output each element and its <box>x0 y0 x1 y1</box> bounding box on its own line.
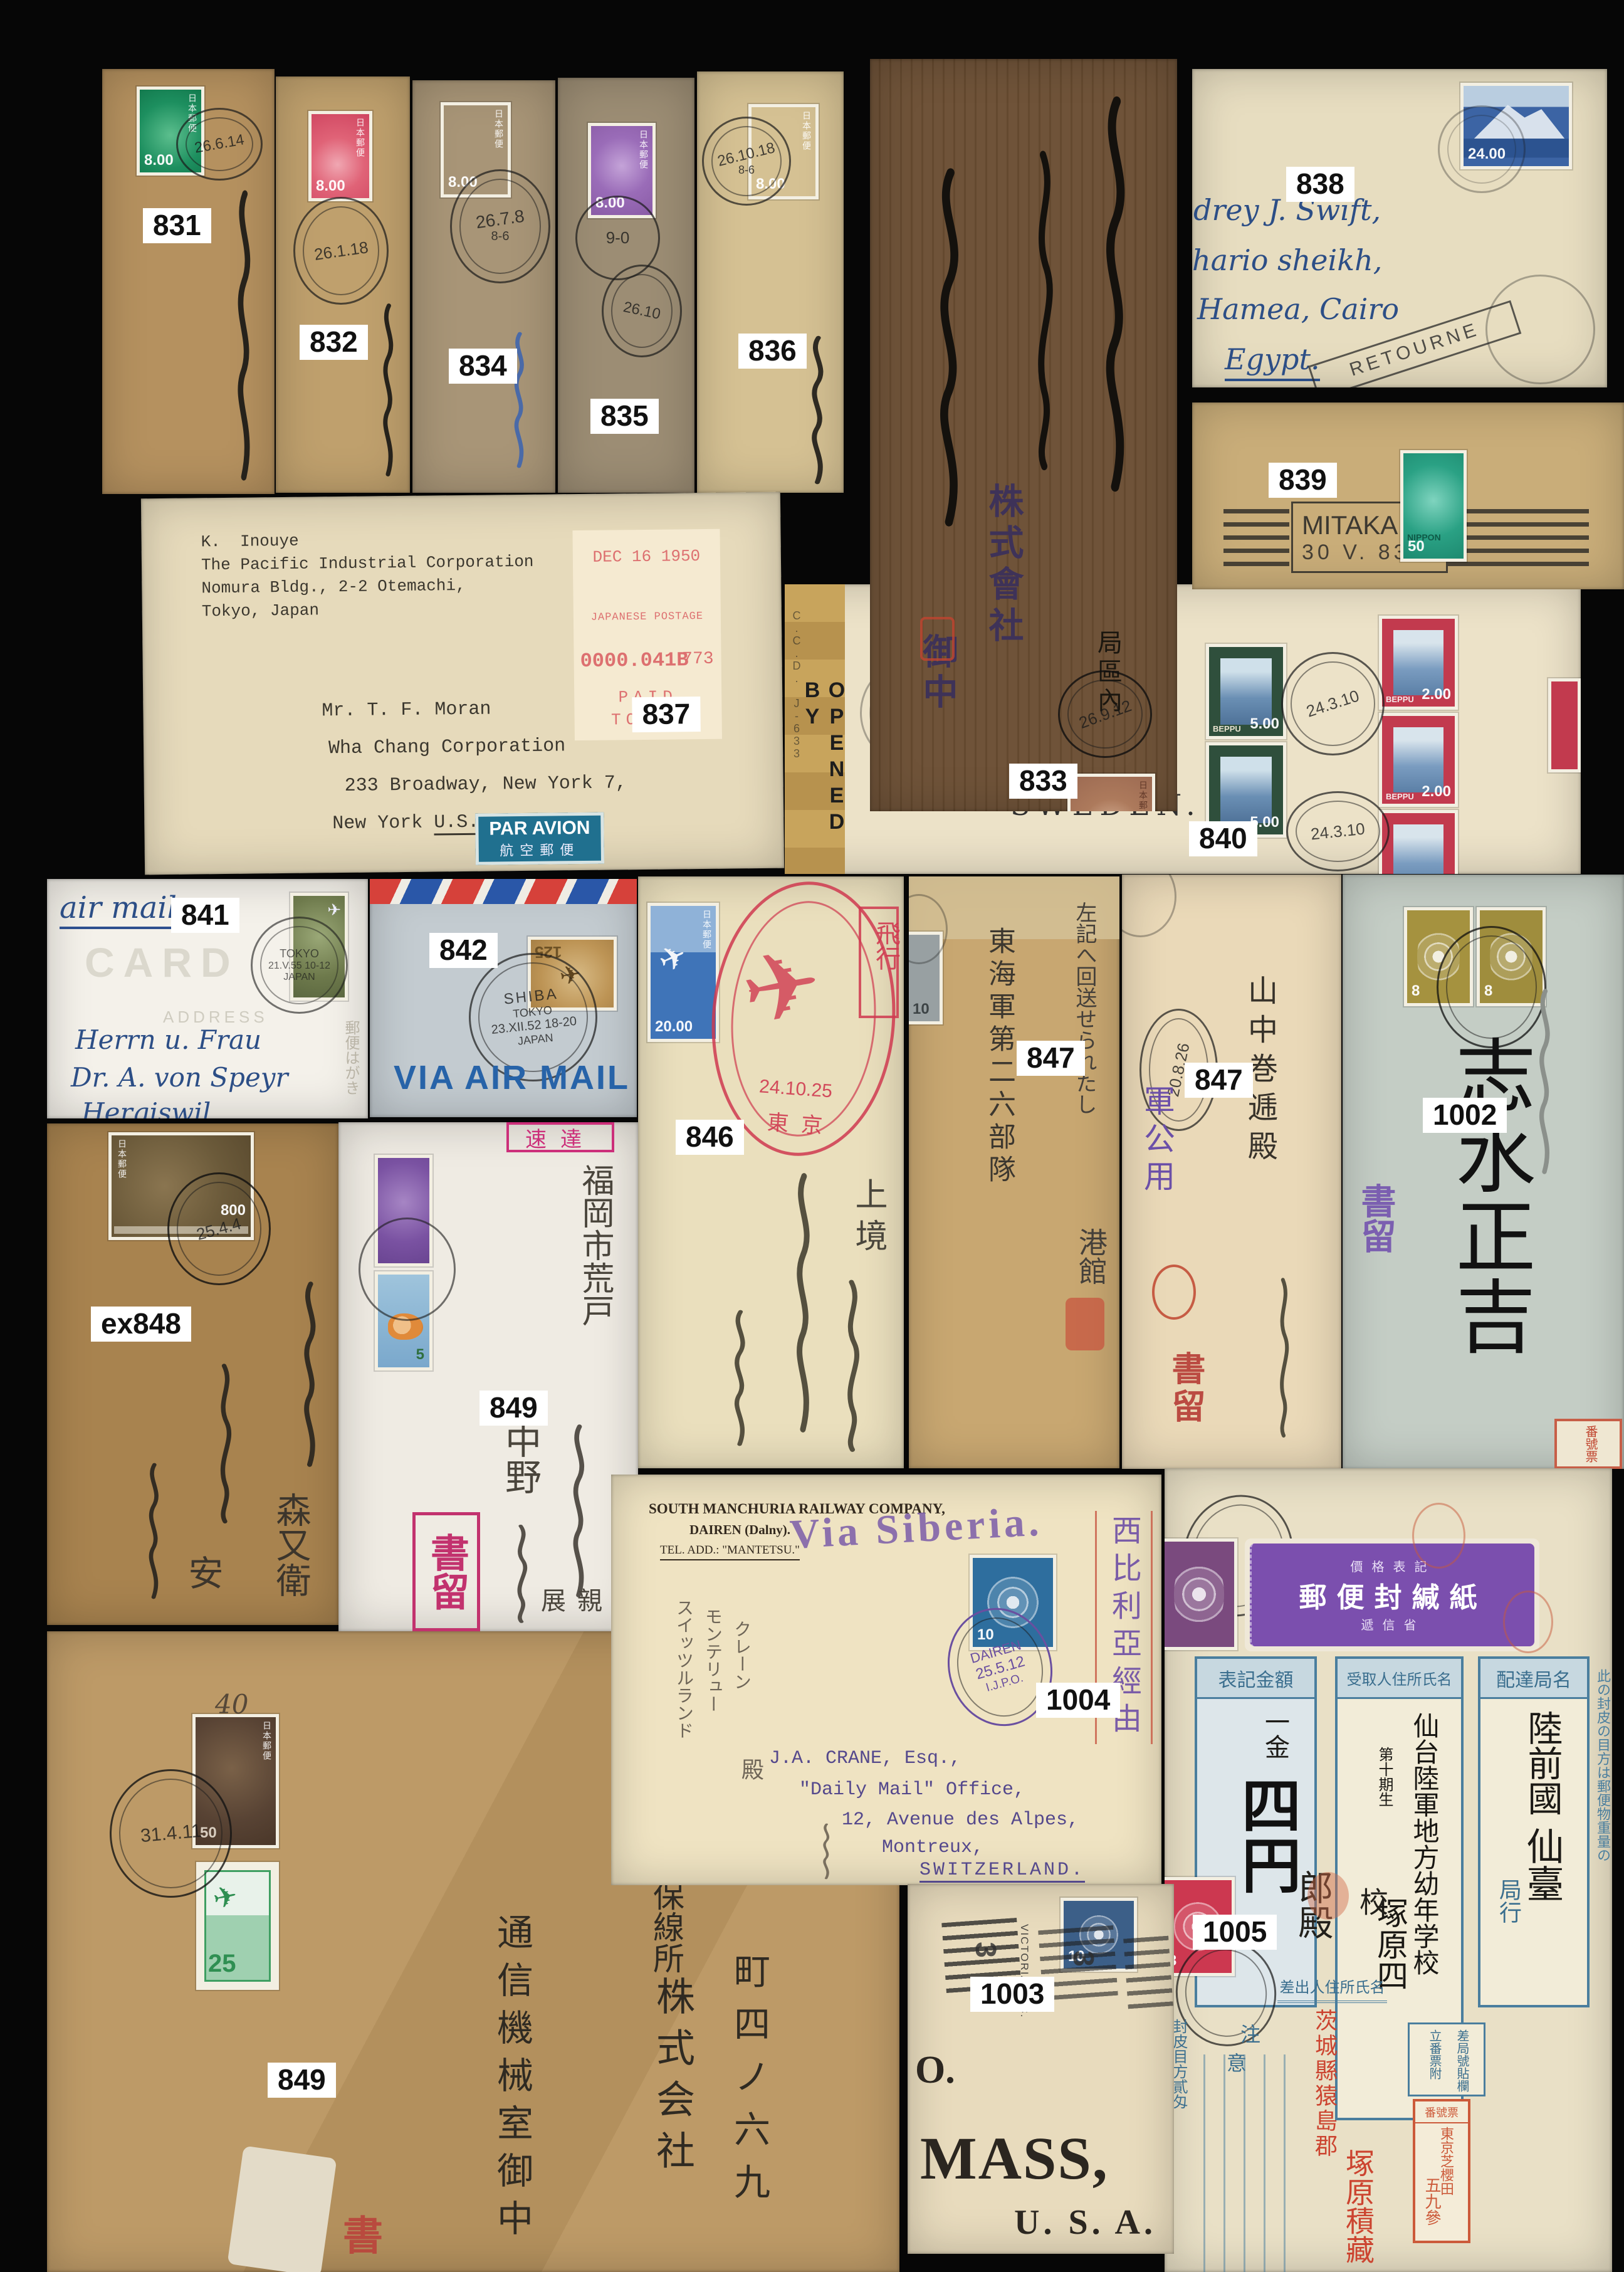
registered-text: 書留 <box>418 1533 474 1611</box>
postmark-town: SHIBA <box>503 986 558 1009</box>
chrysanthemum-motif <box>1174 1552 1224 1637</box>
postmark-city: TOKYO <box>512 1004 553 1021</box>
cover-838: 24.00 drey J. Swift, hario sheikh, Hamea… <box>1192 69 1607 387</box>
postmark-index: 8-6 <box>491 229 510 244</box>
stamp-value: 5.00 <box>1250 715 1279 733</box>
postmark: 31.4.11 <box>110 1769 232 1898</box>
cover-846: 日本郵便 ✈ 20.00 ✈ 24.10.25 東京 飛行 上境 846 <box>638 876 904 1468</box>
stamp-value: 2.00 <box>1422 686 1451 703</box>
retourne-text: RETOURNE <box>1347 318 1482 381</box>
calligraphy-stroke <box>509 1523 534 1624</box>
pencil-katakana: スイッツルランド <box>671 1599 696 1739</box>
torn-patch <box>228 2145 337 2272</box>
header-text: 受取人住所氏名 <box>1347 1667 1452 1689</box>
calligraphy-stroke <box>564 1423 593 1599</box>
machine-cancel-bars <box>1448 509 1589 569</box>
postmark: 24.3.10 <box>1281 652 1385 755</box>
header-text: 表記金額 <box>1218 1665 1294 1692</box>
stamp-value: 2.00 <box>1422 783 1451 801</box>
cover-842: 125 ✈ SHIBA TOKYO 23.XII.52 18-20 JAPAN … <box>370 879 637 1117</box>
delivery-province: 陸前國 <box>1517 1710 1568 1816</box>
address-column: 株式会社 <box>644 1976 700 2182</box>
postage-stamp-purple <box>1165 1538 1237 1650</box>
addressee-line: 233 Broadway, New York 7, <box>345 772 627 797</box>
lot-number: 834 <box>449 349 517 384</box>
postmark <box>1437 926 1546 1048</box>
postmark: 26.10.18 8-6 <box>702 117 791 206</box>
lot-number: 831 <box>143 208 211 243</box>
cover-834: 日本郵便 8.00 26.7.8 8-6 834 <box>412 80 555 493</box>
meter-serial: 773 <box>682 650 714 670</box>
par-avion-jp: 航空郵便 <box>500 839 580 860</box>
cover-1004: SOUTH MANCHURIA RAILWAY COMPANY, DAIREN … <box>611 1475 1161 1885</box>
calligraphy-stroke <box>726 1309 753 1447</box>
label-title: 番號票 <box>1582 1425 1600 1463</box>
red-box-text: 飛行 <box>867 920 904 970</box>
catalog-page: { "colors": { "background": "#060606", "… <box>0 0 1624 2272</box>
postage-stamp-green: BEPPU 5.00 <box>1206 644 1286 739</box>
postmark-date: 26.10.18 <box>716 139 777 171</box>
cover-831: 日本郵便 8.00 26.6.14 831 <box>102 69 275 494</box>
continuation-calligraphy: 校 <box>1351 1887 1393 1916</box>
printed-address: MASS, <box>920 2123 1109 2193</box>
stamp-inscription: 日本郵便 <box>354 118 366 158</box>
addressee-country: SWITZERLAND. <box>919 1859 1085 1883</box>
postage-stamp: 日本郵便 ✈ 20.00 <box>647 903 719 1042</box>
lot-number: 1002 <box>1423 1098 1507 1133</box>
postmark: 24.3.10 <box>1286 791 1390 871</box>
stamp-vignette <box>1393 824 1443 874</box>
calligraphy-stroke <box>1025 147 1063 473</box>
addressee-class: 第十期生 <box>1374 1747 1396 1807</box>
express-handstamp: 速達 <box>506 1122 614 1152</box>
postmark-date: 26.7.8 <box>474 206 526 233</box>
calligraphy-stroke <box>295 1280 325 1468</box>
printed-address: O. <box>915 2048 955 2093</box>
stamp-inscription: 日本郵便 <box>637 130 649 170</box>
censor-tape: OPENED BY C.C.D. J-633 <box>785 584 845 874</box>
lot-number: 833 <box>1009 764 1077 799</box>
postmark-date: 25.5.12 <box>974 1653 1027 1683</box>
postmark-date: 23.XII.52 18-20 <box>491 1014 577 1038</box>
stamp-inscription: 日本郵便 <box>700 910 713 950</box>
cover-841: air mail CARD ADDRESS ✈ TOKYO 21.V.55 10… <box>47 879 368 1118</box>
calligraphy-stroke <box>1531 987 1558 1175</box>
cover-839: MITAKA 30 V. 83 NIPPON 50 839 <box>1192 402 1624 589</box>
calligraphy-stroke <box>802 335 832 485</box>
cover-835: 日本郵便 8.00 9-0 26.10 835 <box>558 78 694 493</box>
via-air-mail: VIA AIR MAIL <box>394 1058 630 1097</box>
addressee-calligraphy: 森又衛 <box>265 1492 316 1597</box>
address-script: 上境 <box>845 1177 892 1260</box>
cover-837: K. Inouye The Pacific Industrial Corpora… <box>141 492 784 875</box>
cover-849-white: 速達 5 福岡市荒戸 中野 書留 親展 849 <box>338 1122 638 1631</box>
stamp-value: 8 <box>1412 982 1420 1000</box>
registered-box-handstamp: 書留 <box>412 1512 480 1631</box>
label-header-text: 立番票附 <box>1426 2029 1444 2080</box>
red-oval-seal <box>1503 1591 1553 1653</box>
calligraphy-stroke <box>228 188 260 483</box>
postage-stamp-red: BEPPU 2.00 <box>1379 810 1458 874</box>
lot-number: 841 <box>171 898 239 933</box>
lot-number: 847 <box>1017 1041 1085 1076</box>
machine-cancel-bars <box>1223 509 1289 569</box>
stamp-name: BEPPU <box>1386 695 1414 704</box>
address-column: 町四ノ六九 <box>723 1952 775 2216</box>
addressee-name: 中野 <box>494 1422 547 1495</box>
addressee-line: Mr. T. F. Moran <box>322 699 491 722</box>
stamp-name: BEPPU <box>1386 792 1414 801</box>
airmail-border <box>370 879 637 904</box>
lot-number: 840 <box>1189 821 1257 856</box>
label-header-text: 差局號貼欄 <box>1454 2029 1472 2092</box>
stamp-name: BEPPU <box>1213 724 1241 734</box>
postcard-note: 郵便はがき <box>340 1020 362 1095</box>
seal-main-text: 郵便封緘紙 <box>1299 1575 1487 1615</box>
postmark-date: 31.4.11 <box>139 1820 202 1846</box>
postmark-country: JAPAN <box>283 972 315 983</box>
express-text: 速達 <box>525 1122 595 1153</box>
addressee-line: Herrn u. Frau <box>75 1024 261 1055</box>
postmark <box>1438 105 1526 193</box>
postmark-date: 26.9.12 <box>1076 696 1134 733</box>
cancel-digit: 3 <box>1067 1950 1101 1967</box>
cover-847-cream: 20.8.26 軍公用 山中巻逓殿 書留 847 <box>1122 875 1341 1469</box>
postmark-index: 8-6 <box>738 164 755 177</box>
stamp-value: 10 <box>913 1001 930 1018</box>
postage-stamp: NIPPON 50 <box>1400 450 1467 562</box>
stamp-value: 5 <box>416 1346 424 1364</box>
sender-line: K. Inouye <box>201 532 298 552</box>
calligraphy-stroke <box>211 1362 239 1525</box>
form-column-delivery: 配達局名 陸前國 仙臺 局行 <box>1478 1656 1590 2007</box>
postage-stamp-red: BEPPU 2.00 <box>1379 713 1458 807</box>
lot-number: ex848 <box>91 1307 191 1342</box>
plane-icon: ✈ <box>327 901 341 920</box>
registration-number-label: 番號票 東京芝櫻田 五九參 <box>1413 2099 1470 2243</box>
postmark: 26.9.12 <box>1058 670 1152 758</box>
column-header: 配達局名 <box>1480 1659 1587 1699</box>
postmark: 26.6.14 <box>176 108 263 181</box>
label-number: 五九參 <box>1420 2177 1443 2226</box>
postmark: 25.4.4 <box>167 1172 271 1285</box>
confidential-note: 親展 <box>533 1587 605 1631</box>
stamp-inscription: 日本郵便 <box>1136 781 1149 811</box>
red-oval-seal <box>1412 1503 1465 1569</box>
lot-number: 835 <box>590 399 659 434</box>
postmark-town: TOKYO <box>280 947 319 960</box>
addressee-calligraphy: 志水正吉 <box>1430 1034 1546 1355</box>
postmark: TOKYO 21.V.55 10-12 JAPAN <box>251 917 348 1014</box>
sender-address: 茨城縣猿島郡 <box>1307 2009 1340 2159</box>
red-box-handstamp: 飛行 <box>859 907 899 1018</box>
calligraphy-stroke <box>375 302 401 478</box>
calligraphy-stroke <box>1091 93 1139 495</box>
pencil-katakana: モンテリュー <box>700 1607 725 1713</box>
stamp-inscription: 日本郵便 <box>492 109 505 149</box>
addressee-line: J.A. CRANE, Esq., <box>769 1748 961 1769</box>
calligraphy-stroke <box>837 1278 867 1453</box>
registration-label: 番號票 <box>1554 1419 1622 1469</box>
postmark-date: 24.3.10 <box>1304 686 1361 721</box>
stamp-inscription: 日本郵便 <box>800 111 812 151</box>
postmark: 26.7.8 8-6 <box>450 169 550 283</box>
sender-line: Tokyo, Japan <box>202 601 320 621</box>
calligraphy-stroke <box>1272 1276 1295 1439</box>
cover-832: 日本郵便 8.00 26.1.18 832 <box>276 76 410 493</box>
sealing-strip: 價格表記 郵便封緘紙 遞信省 <box>1245 1538 1539 1651</box>
addressee-line: "Daily Mail" Office, <box>799 1779 1025 1801</box>
stamp-inscription: 日本郵便 <box>115 1139 128 1179</box>
meter-slogan: JAPANESE POSTAGE <box>574 611 721 624</box>
header-text: 配達局名 <box>1496 1665 1571 1692</box>
corner-card-line: DAIREN (Dalny). <box>689 1522 790 1538</box>
sender-header: 差出人住所氏名 <box>1277 1975 1387 2003</box>
lot-number: 1005 <box>1193 1915 1277 1950</box>
lot-number: 832 <box>300 325 368 360</box>
lot-number: 1003 <box>970 1977 1054 2012</box>
stamp-value: 25 <box>208 1950 236 1978</box>
pencil-katakana: クレーン <box>729 1620 754 1690</box>
machine-cancel-bars <box>1123 1936 1173 2009</box>
red-seal <box>1066 1298 1104 1350</box>
postmark: 26.1.18 <box>293 197 389 305</box>
cancel-digit: 3 <box>969 1942 1003 1958</box>
stamp-value: 8.00 <box>144 152 174 169</box>
postmark-partial <box>1122 875 1176 937</box>
postmark-date: 26.6.14 <box>193 131 246 157</box>
lot-number: 836 <box>738 334 807 369</box>
forwarding-note: 左記へ回送せられたし <box>1069 902 1100 1115</box>
delivery-office: 局行 <box>1492 1878 1524 1923</box>
calligraphy-stroke <box>925 166 973 529</box>
postage-stamp: 日本郵便 8.00 <box>1067 774 1155 811</box>
cover-ex848: 日本郵便 800 25.4.4 森又衛 安 ex848 <box>47 1123 338 1625</box>
stamp-value: 20.00 <box>655 1018 693 1036</box>
registered-handstamp: 書留 <box>1161 1351 1210 1426</box>
postmark-date: 25.4.4 <box>195 1214 244 1244</box>
postmark-town: DAIREN <box>968 1637 1023 1667</box>
meter-value: 0000.041B <box>580 648 688 673</box>
lot-number: 847 <box>1185 1063 1253 1098</box>
official-mail-handstamp: 軍公用 <box>1134 1085 1180 1197</box>
addressee-line: 12, Avenue des Alpes, <box>842 1809 1079 1831</box>
calligraphy-stroke <box>141 1462 166 1600</box>
lot-number: 846 <box>676 1120 744 1155</box>
corner-card-line: TEL. ADD.: "MANTETSU." <box>660 1544 800 1560</box>
addressee-line: Dr. A. von Speyr <box>71 1062 288 1093</box>
cover-836: 日本郵便 8.00 26.10.18 8-6 836 <box>697 71 844 493</box>
addressee-line: Hamea, Cairo <box>1197 292 1399 326</box>
cover-833: 株式會社 御中 局區內 26.9.12 日本郵便 8.00 833 <box>870 59 1177 811</box>
addressee-line: Wha Chang Corporation <box>328 735 565 759</box>
address-city: 福岡市荒戸 <box>572 1164 619 1327</box>
postage-stamp-red: BEPPU 2.00 <box>1379 616 1458 710</box>
postmark-date: 26.1.18 <box>313 238 369 265</box>
notice-text-lines <box>1203 2054 1299 2272</box>
stamp-inscription: 日本郵便 <box>260 1721 273 1761</box>
margin-note: 此の封皮の目方は郵便物重量の <box>1592 1669 1612 1862</box>
postmark-date: 24.3.10 <box>1310 819 1366 844</box>
cover-1002: 8 8 書留 志水正吉 番號票 1002 <box>1343 875 1624 1469</box>
postmark-country: JAPAN <box>517 1031 554 1048</box>
lot-number: 838 <box>1286 167 1354 202</box>
postage-stamp-red-partial <box>1548 678 1581 772</box>
postmark-date: 26.10 <box>622 298 663 323</box>
par-avion-etiquette: PAR AVION 航空郵便 <box>475 813 604 865</box>
calligraphy-stroke <box>786 1171 820 1434</box>
red-oval-seal <box>1152 1265 1196 1320</box>
red-seal <box>920 617 955 661</box>
sender-name: 塚原積藏 <box>1338 2148 1379 2264</box>
addressee-line: Egypt. <box>1225 342 1320 381</box>
cover-1003: 10 3 3 VICTORIA, B.C. O. MASS, U. S. A. … <box>908 1884 1174 2254</box>
column-header: 受取人住所氏名 <box>1338 1659 1461 1699</box>
par-avion-text: PAR AVION <box>489 818 590 840</box>
military-unit: 東海軍第二六部隊 <box>979 927 1019 1187</box>
cancel-city: 東京 <box>767 1105 836 1140</box>
postmark: 26.10 <box>602 265 682 357</box>
address-column: 通信機械室御中 <box>486 1913 538 2247</box>
amount-prefix: 一金 <box>1257 1709 1293 1759</box>
label-title: 番號票 <box>1415 2104 1468 2123</box>
postmark-index: 9-0 <box>606 228 630 248</box>
sender-line: Nomura Bldg., 2-2 Otemachi, <box>201 576 466 597</box>
lot-number: 849 <box>268 2063 336 2098</box>
calligraphy-stroke <box>818 1823 834 1880</box>
sealing-strip-panel: 價格表記 郵便封緘紙 遞信省 <box>1250 1544 1534 1646</box>
postmark-office: I.J.P.O. <box>985 1671 1025 1695</box>
lot-number: 849 <box>479 1391 548 1426</box>
addressee-line: New York <box>332 813 422 835</box>
printed-address: U. S. A. <box>1014 2202 1156 2243</box>
addressee-line: Montreux, <box>882 1837 983 1858</box>
postmark <box>359 1218 456 1321</box>
meter-date: DEC 16 1950 <box>573 547 720 567</box>
addressee-line: Hergiswil <box>81 1097 211 1118</box>
registered-handstamp: 書留 <box>1350 1183 1401 1253</box>
lot-number: 1004 <box>1036 1683 1120 1718</box>
cover-847-tan: 10 左記へ回送せられたし 港館 東海軍第二六部隊 847 <box>909 876 1119 1468</box>
lot-number: 837 <box>632 697 700 732</box>
lot-number: 842 <box>429 933 498 968</box>
sender-line: The Pacific Industrial Corporation <box>201 552 534 575</box>
airmail-note: air mail <box>60 890 177 929</box>
postage-stamp: 日本郵便 8.00 <box>308 111 372 201</box>
postmark-date: 21.V.55 10-12 <box>268 960 330 972</box>
card-emboss: CARD <box>85 939 239 986</box>
addressee-line: hario sheikh, <box>1192 243 1382 277</box>
censor-text: OPENED BY <box>800 678 849 874</box>
company-imprint: 株式會社 <box>978 483 1029 648</box>
plane-icon: ✈ <box>653 936 693 982</box>
seal-bottom-text: 遞信省 <box>1361 1615 1425 1633</box>
red-oval-seal <box>1307 1872 1349 1920</box>
stamp-value: 8.00 <box>316 177 345 195</box>
addressee-calligraphy: 安 <box>177 1555 228 1590</box>
cover-1005: 價格表記 郵便封緘紙 遞信省 番號票 配達局名 陸前國 仙臺 局行 受取人住所氏… <box>1165 1468 1612 2272</box>
column-header: 表記金額 <box>1197 1659 1314 1699</box>
stamp-value: 50 <box>1408 538 1425 555</box>
pencil-honorific: 殿 <box>734 1758 767 1780</box>
label-frame-header: 差局號貼欄 立番票附 <box>1408 2022 1485 2096</box>
lot-number: 839 <box>1269 463 1337 498</box>
port-note: 港館 <box>1071 1228 1112 1285</box>
censor-serial: C.C.D. J-633 <box>790 609 803 760</box>
